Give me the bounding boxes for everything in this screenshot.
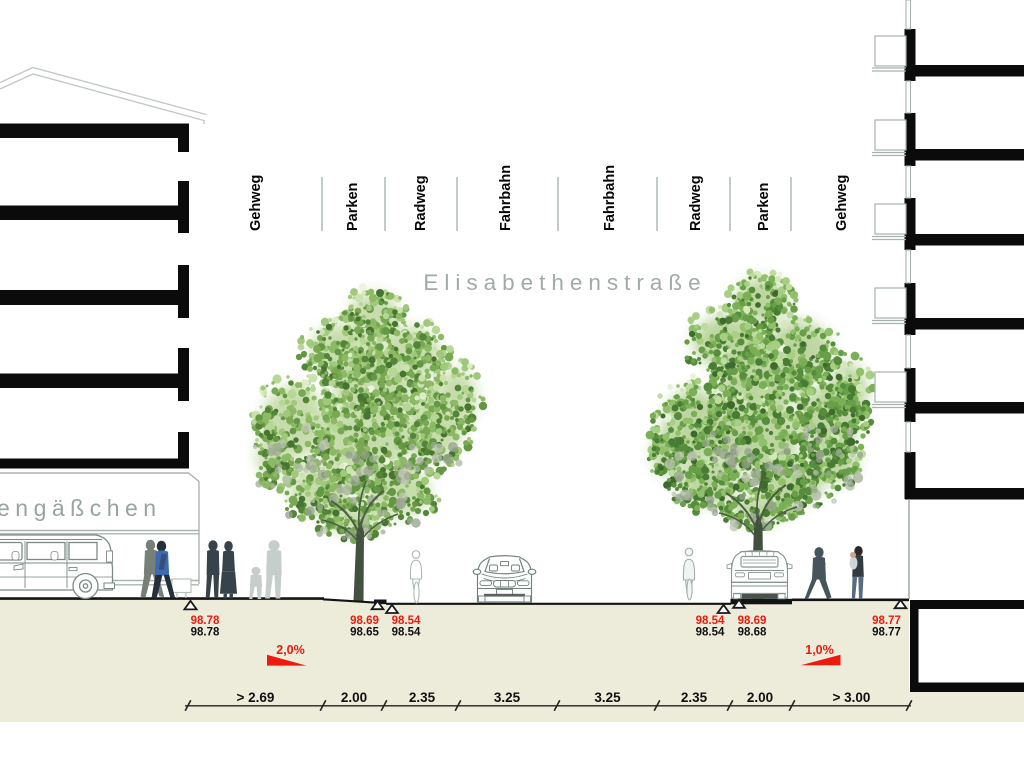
svg-text:98.65: 98.65 — [350, 627, 379, 639]
svg-text:engäßchen: engäßchen — [0, 495, 162, 521]
svg-text:Elisabethenstraße: Elisabethenstraße — [423, 270, 706, 295]
svg-text:98.78: 98.78 — [191, 615, 220, 627]
svg-text:98.54: 98.54 — [696, 627, 725, 639]
svg-text:2,0%: 2,0% — [276, 643, 305, 657]
svg-text:Parken: Parken — [756, 183, 772, 231]
svg-text:2.00: 2.00 — [341, 690, 367, 705]
svg-text:3.25: 3.25 — [594, 690, 621, 705]
svg-text:98.78: 98.78 — [191, 627, 220, 639]
svg-text:Gehweg: Gehweg — [248, 175, 264, 231]
svg-text:Fahrbahn: Fahrbahn — [498, 165, 514, 231]
svg-text:> 2.69: > 2.69 — [237, 690, 275, 705]
svg-text:98.69: 98.69 — [350, 615, 379, 627]
svg-text:98.69: 98.69 — [738, 615, 767, 627]
svg-text:Parken: Parken — [345, 183, 361, 231]
svg-text:98.77: 98.77 — [872, 627, 901, 639]
svg-text:98.68: 98.68 — [738, 627, 767, 639]
svg-text:1,0%: 1,0% — [805, 643, 834, 657]
svg-text:98.54: 98.54 — [392, 615, 421, 627]
svg-text:Radweg: Radweg — [688, 175, 704, 231]
svg-text:3.25: 3.25 — [494, 690, 521, 705]
svg-text:98.54: 98.54 — [696, 615, 725, 627]
svg-text:98.77: 98.77 — [872, 615, 901, 627]
svg-text:2.00: 2.00 — [747, 690, 773, 705]
svg-text:98.54: 98.54 — [392, 627, 421, 639]
svg-text:Radweg: Radweg — [413, 175, 429, 231]
svg-text:2.35: 2.35 — [409, 690, 436, 705]
svg-text:2.35: 2.35 — [681, 690, 708, 705]
svg-text:Fahrbahn: Fahrbahn — [602, 165, 618, 231]
svg-text:> 3.00: > 3.00 — [833, 690, 871, 705]
svg-text:Gehweg: Gehweg — [834, 175, 850, 231]
